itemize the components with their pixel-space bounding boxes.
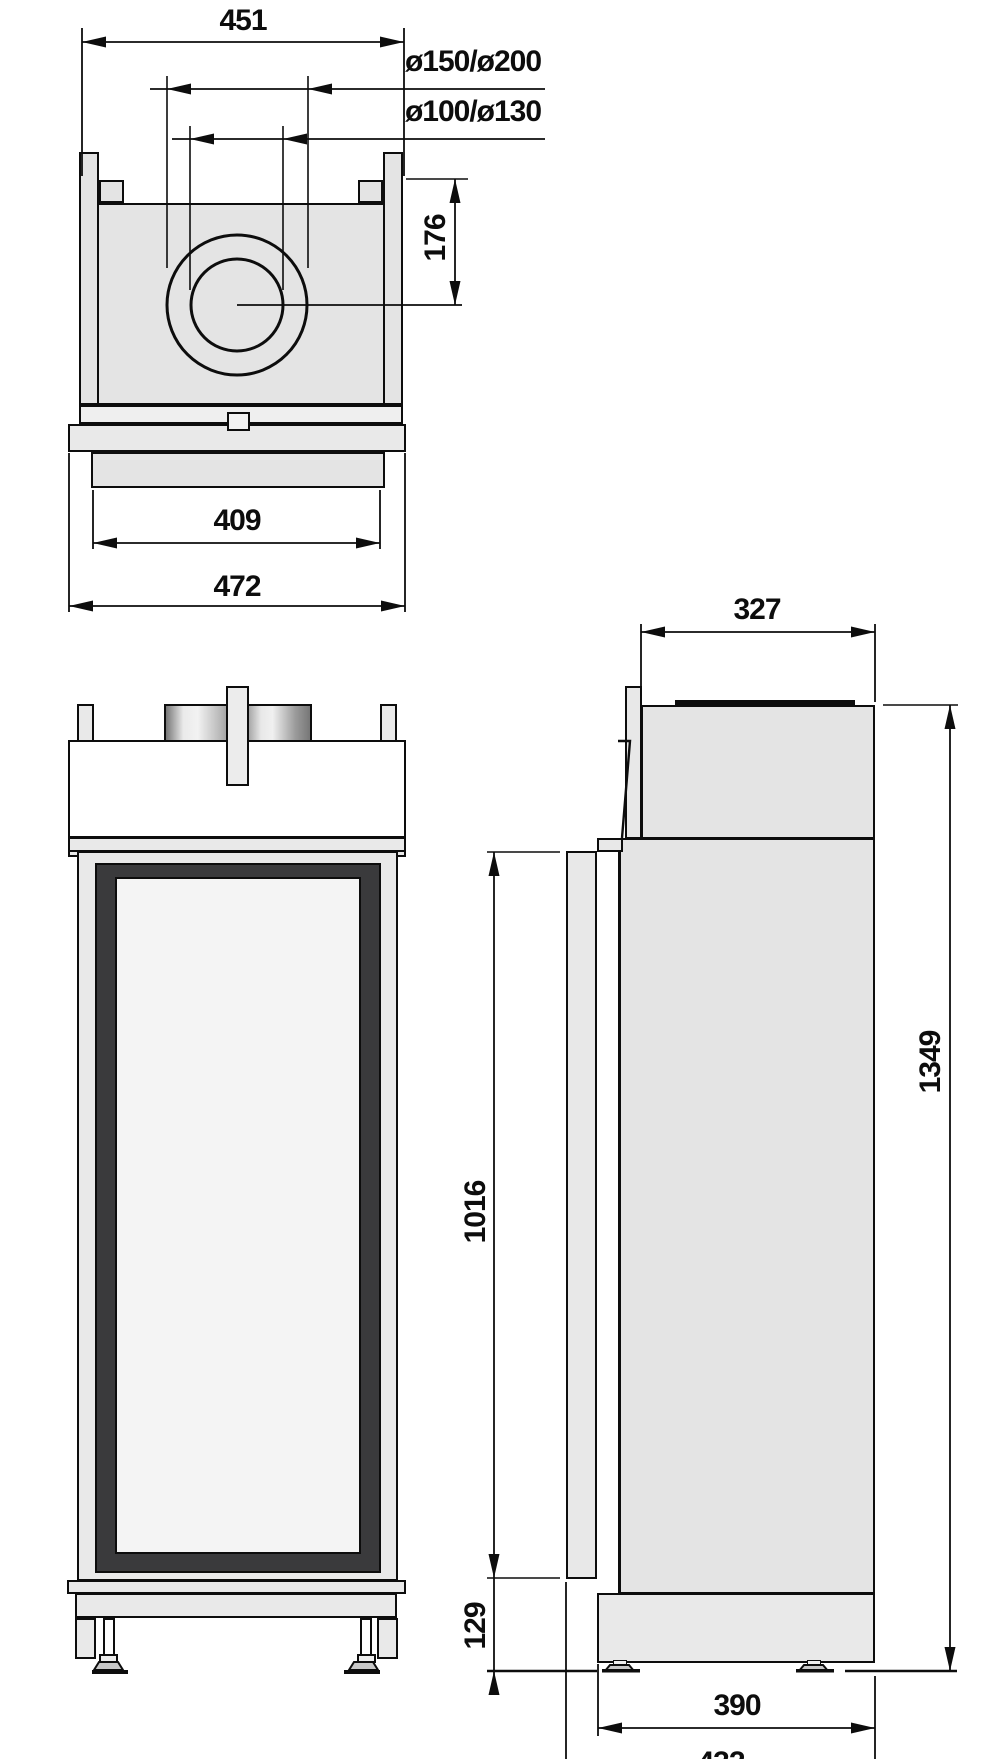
side-door-profile — [566, 851, 597, 1579]
plan-tab-right — [358, 180, 383, 203]
label-overall-width: 472 — [213, 570, 260, 604]
side-body-lower — [618, 838, 875, 1594]
front-tab-left — [77, 704, 94, 742]
front-damper-rod — [226, 686, 249, 786]
front-leg-right — [377, 1618, 398, 1659]
technical-drawing-canvas: 451 ø150/ø200 ø100/ø130 176 409 472 327 … — [0, 0, 1000, 1759]
plan-body — [79, 203, 403, 405]
label-plinth-height: 129 — [459, 1602, 493, 1649]
front-door-glass — [115, 877, 361, 1554]
side-top-plate — [675, 700, 855, 705]
plan-side-wall-right — [383, 152, 403, 405]
label-base-depth: 390 — [713, 1689, 760, 1723]
label-overall-height: 1349 — [914, 1031, 948, 1094]
label-top-depth: 327 — [733, 593, 780, 627]
front-top-band — [68, 837, 406, 852]
dim-overall-height — [883, 705, 958, 1671]
plan-side-wall-left — [79, 152, 99, 405]
label-door-height: 1016 — [459, 1181, 493, 1244]
side-body-upper — [641, 705, 875, 839]
label-overall-depth: 432 — [697, 1746, 744, 1759]
front-plinth — [75, 1593, 397, 1618]
side-foot-stem-rear — [807, 1660, 821, 1666]
side-foot-pads — [602, 1665, 834, 1673]
label-flue-outer: ø150/ø200 — [405, 45, 541, 79]
label-top-width: 451 — [219, 4, 266, 38]
dim-top-depth — [641, 624, 875, 702]
front-leg-left-bars — [103, 1618, 115, 1659]
label-plate-width: 409 — [213, 504, 260, 538]
front-foot-stem-left — [99, 1654, 118, 1663]
plan-tab-left — [99, 180, 124, 203]
label-flue-offset: 176 — [419, 214, 453, 261]
plan-latch — [227, 412, 250, 431]
side-front-trim — [625, 686, 642, 839]
label-flue-inner: ø100/ø130 — [405, 95, 541, 129]
front-foot-stem-right — [357, 1654, 376, 1663]
side-front-notch — [597, 838, 623, 852]
front-base-flange — [67, 1580, 406, 1594]
front-tab-right — [380, 704, 397, 742]
front-leg-right-bars — [360, 1618, 372, 1659]
dim-top-width — [82, 28, 404, 176]
front-foot-pads — [92, 1662, 380, 1674]
dim-door-height — [487, 852, 560, 1695]
side-foot-stem-front — [613, 1660, 627, 1666]
front-leg-left — [75, 1618, 96, 1659]
side-base — [597, 1593, 875, 1663]
plan-bottom-plate — [91, 452, 385, 488]
